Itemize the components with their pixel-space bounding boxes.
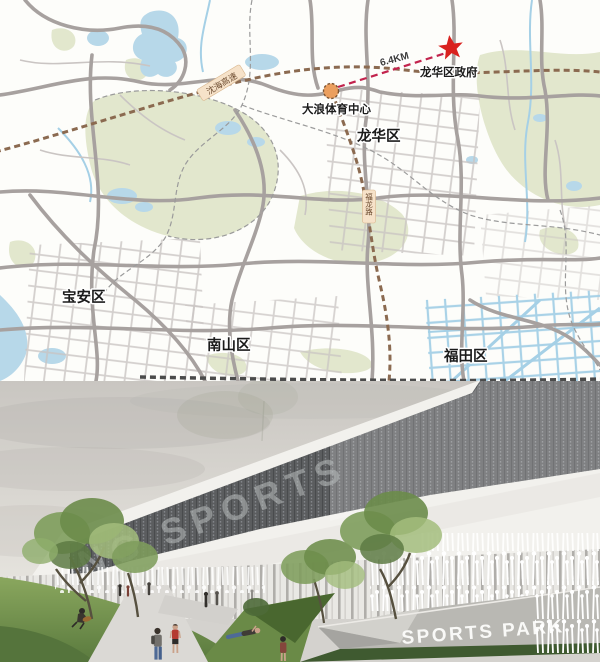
district-label-futian: 福田区 (443, 347, 488, 365)
origin-poi-label: 大浪体育中心 (302, 102, 371, 116)
reed-bed-upper (420, 533, 600, 579)
location-map: 沈海高速 福龙路 6.4KM 大浪体育中心 龙华区政府 宝安区 南山区 福田区 … (0, 0, 600, 381)
render-canvas: NG SPORTS SPORTS PARK (0, 381, 600, 662)
shrub (243, 598, 269, 616)
origin-marker-icon (324, 84, 339, 99)
screenshot-root: 沈海高速 福龙路 6.4KM 大浪体育中心 龙华区政府 宝安区 南山区 福田区 … (0, 0, 600, 662)
road-label-badge: 福龙路 (363, 190, 376, 223)
reed-bed-left (55, 567, 265, 593)
road-label: 福龙路 (364, 193, 373, 216)
district-label-nanshan: 南山区 (207, 336, 251, 354)
architectural-rendering: NG SPORTS SPORTS PARK (0, 381, 600, 662)
district-label-longhua: 龙华区 (356, 127, 401, 145)
reed-bed-front (535, 581, 600, 653)
destination-poi-label: 龙华区政府 (419, 65, 478, 79)
district-label-baoan: 宝安区 (62, 288, 106, 306)
map-canvas: 沈海高速 福龙路 6.4KM 大浪体育中心 龙华区政府 宝安区 南山区 福田区 … (0, 0, 600, 381)
